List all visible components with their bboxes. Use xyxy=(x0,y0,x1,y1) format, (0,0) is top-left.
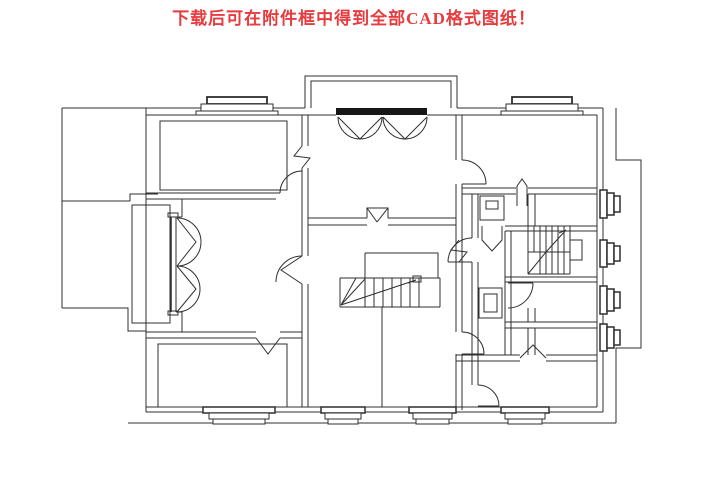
left-balcony xyxy=(62,194,182,332)
door-leaf xyxy=(517,179,527,206)
door-leaf-v xyxy=(520,345,546,358)
entry-porch xyxy=(305,76,457,115)
door-leaf-v xyxy=(367,208,388,222)
outer-walls xyxy=(62,108,641,423)
central-staircase xyxy=(340,253,440,407)
balcony-french-doors xyxy=(177,218,201,312)
secondary-staircase xyxy=(528,226,582,274)
page: { "title": { "text": "下载后可在附件框中得到全部CAD格式… xyxy=(0,0,708,500)
entry-double-doors xyxy=(338,117,427,139)
bedroom-top-left xyxy=(146,121,302,199)
wall-break-symbol xyxy=(294,146,310,168)
floor-plan-drawing xyxy=(0,0,708,500)
entry-hall xyxy=(308,208,456,225)
wall-break-symbol xyxy=(451,240,467,262)
window-sills xyxy=(196,97,583,424)
top-right-room xyxy=(462,179,597,206)
door-leaf-v xyxy=(256,338,280,354)
door-leaf xyxy=(482,226,502,251)
toilet-fixture xyxy=(479,288,502,318)
